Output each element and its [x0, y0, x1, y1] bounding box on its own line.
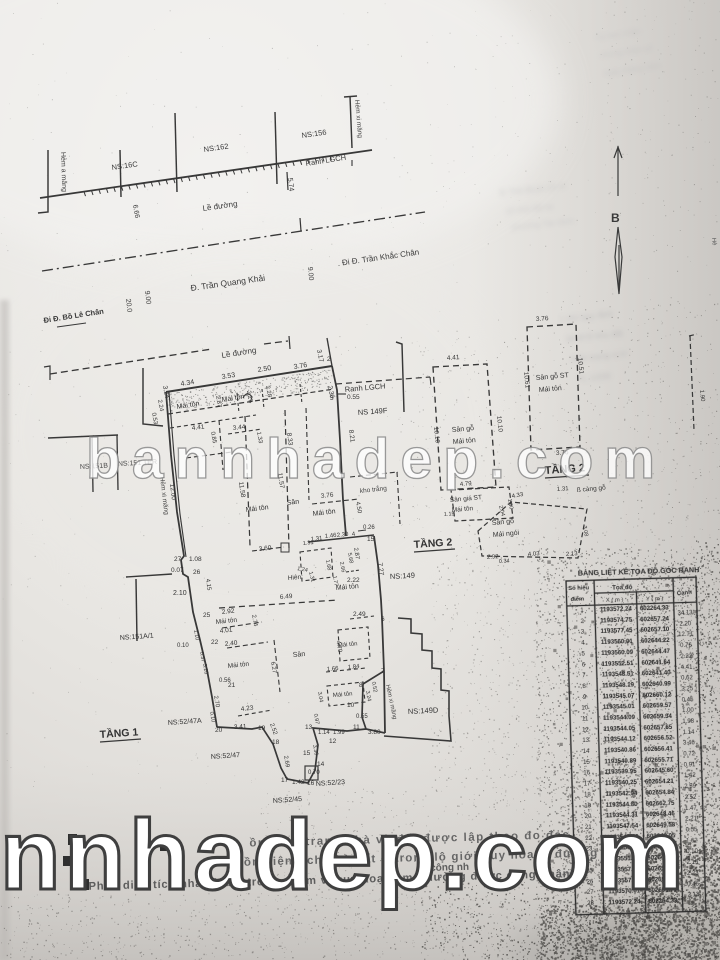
svg-text:0.76: 0.76 — [680, 643, 693, 649]
svg-text:bannhadep.com: bannhadep.com — [86, 427, 666, 491]
svg-text:1193540.25: 1193540.25 — [605, 779, 638, 787]
svg-text:8: 8 — [359, 682, 363, 689]
svg-text:2.92: 2.92 — [221, 608, 235, 616]
svg-text:12: 12 — [582, 727, 590, 733]
svg-text:1.90: 1.90 — [698, 390, 705, 403]
svg-text:Số hiệu: Số hiệu — [568, 584, 590, 592]
svg-text:1193548.51: 1193548.51 — [602, 671, 635, 679]
svg-text:1.62: 1.62 — [686, 838, 699, 844]
svg-text:602640.99: 602640.99 — [642, 680, 672, 688]
svg-text:2.40: 2.40 — [224, 640, 238, 648]
svg-text:4.03: 4.03 — [528, 551, 541, 558]
svg-text:12: 12 — [329, 738, 337, 745]
svg-text:10: 10 — [581, 705, 589, 711]
svg-text:22: 22 — [211, 639, 219, 646]
svg-text:nnhadep.com: nnhadep.com — [0, 799, 688, 910]
svg-text:2.23: 2.23 — [687, 871, 700, 877]
svg-text:2.15: 2.15 — [687, 860, 700, 866]
svg-text:3.80: 3.80 — [368, 729, 381, 736]
svg-text:Tọa độ: Tọa độ — [612, 584, 633, 592]
svg-text:12.71: 12.71 — [678, 632, 694, 638]
svg-text:Sân: Sân — [293, 651, 306, 659]
svg-text:4.01: 4.01 — [219, 627, 233, 635]
svg-text:1.08: 1.08 — [189, 556, 202, 563]
svg-text:34.13: 34.13 — [677, 610, 693, 616]
svg-text:602641.40: 602641.40 — [642, 670, 672, 678]
svg-text:1.14: 1.14 — [683, 730, 696, 736]
svg-text:1.66: 1.66 — [327, 666, 340, 673]
svg-text:Hẻ: Hẻ — [710, 238, 717, 247]
svg-text:0.07: 0.07 — [171, 567, 184, 574]
svg-text:0.70: 0.70 — [308, 770, 320, 776]
svg-text:602264.33: 602264.33 — [640, 604, 670, 612]
svg-text:0.91: 0.91 — [684, 762, 697, 768]
svg-text:2.13: 2.13 — [687, 892, 700, 898]
svg-text:2: 2 — [327, 356, 331, 363]
svg-text:602644.22: 602644.22 — [641, 637, 671, 645]
svg-text:602660.12: 602660.12 — [642, 691, 672, 699]
svg-text:0.46: 0.46 — [687, 881, 700, 887]
svg-text:602657.10: 602657.10 — [640, 626, 670, 634]
svg-text:1193539.95: 1193539.95 — [605, 768, 638, 776]
svg-text:1.46: 1.46 — [325, 533, 338, 540]
svg-text:1.31: 1.31 — [303, 540, 314, 547]
svg-text:B: B — [611, 211, 620, 225]
svg-text:2.10: 2.10 — [173, 590, 187, 597]
svg-text:602655.71: 602655.71 — [644, 756, 674, 764]
svg-text:11: 11 — [353, 724, 360, 731]
svg-text:điểm: điểm — [570, 595, 584, 602]
svg-text:1193542.94: 1193542.94 — [605, 790, 638, 798]
svg-text:1193545.07: 1193545.07 — [602, 692, 635, 700]
svg-text:602657.65: 602657.65 — [643, 724, 673, 732]
svg-text:602654.21: 602654.21 — [645, 778, 675, 786]
svg-text:1.84: 1.84 — [348, 664, 361, 671]
svg-text:1193577.45: 1193577.45 — [600, 627, 633, 635]
svg-text:2.22: 2.22 — [680, 654, 693, 660]
svg-text:17: 17 — [584, 781, 592, 787]
svg-text:1193540.89: 1193540.89 — [604, 757, 637, 765]
svg-text:1193552.51: 1193552.51 — [601, 660, 634, 668]
svg-text:1.98: 1.98 — [682, 719, 695, 725]
svg-text:Hiên:: Hiên: — [288, 574, 304, 582]
svg-text:1193544.09: 1193544.09 — [603, 714, 636, 722]
svg-text:1193540.86: 1193540.86 — [604, 746, 637, 754]
svg-text:15: 15 — [583, 760, 591, 766]
svg-text:18: 18 — [584, 792, 592, 798]
svg-text:18: 18 — [272, 739, 280, 746]
svg-text:602654.84: 602654.84 — [645, 789, 675, 797]
svg-text:1193560.09: 1193560.09 — [601, 649, 634, 657]
svg-text:1193544.05: 1193544.05 — [603, 725, 636, 733]
svg-text:TẦNG 2: TẦNG 2 — [413, 535, 452, 551]
svg-text:1.42: 1.42 — [292, 779, 305, 786]
svg-text:20: 20 — [215, 727, 223, 734]
svg-text:6.49: 6.49 — [280, 593, 294, 601]
svg-text:0.10: 0.10 — [686, 849, 699, 855]
svg-text:4.41: 4.41 — [447, 354, 460, 362]
svg-text:7: 7 — [381, 668, 385, 675]
svg-text:3.76: 3.76 — [536, 315, 549, 323]
svg-text:Y ( m ): Y ( m ) — [646, 596, 664, 603]
svg-text:0.55: 0.55 — [347, 394, 360, 401]
svg-text:0.34: 0.34 — [499, 558, 510, 565]
svg-text:17: 17 — [281, 777, 289, 784]
svg-text:4.23: 4.23 — [240, 705, 254, 713]
svg-text:602641.64: 602641.64 — [641, 659, 671, 667]
svg-text:X ( m ): X ( m ) — [606, 597, 624, 604]
svg-text:602656.41: 602656.41 — [644, 745, 674, 753]
svg-text:3.41: 3.41 — [234, 723, 247, 731]
svg-text:3: 3 — [330, 395, 334, 402]
svg-text:19: 19 — [258, 725, 266, 732]
svg-text:602659.34: 602659.34 — [643, 713, 673, 721]
svg-text:1.00: 1.00 — [682, 708, 695, 714]
svg-text:4.41: 4.41 — [681, 665, 694, 671]
svg-text:1193560.01: 1193560.01 — [601, 638, 634, 646]
svg-text:13: 13 — [582, 738, 590, 744]
svg-text:2.13: 2.13 — [566, 551, 579, 558]
svg-text:9.00: 9.00 — [306, 267, 314, 281]
svg-text:1.15: 1.15 — [444, 511, 455, 518]
svg-text:1193572.24: 1193572.24 — [600, 606, 633, 614]
svg-text:1193548.19: 1193548.19 — [602, 682, 635, 690]
svg-text:15: 15 — [303, 750, 311, 757]
svg-text:1.14: 1.14 — [318, 730, 330, 736]
svg-text:0.55: 0.55 — [356, 714, 368, 720]
svg-text:2.20: 2.20 — [679, 621, 692, 627]
svg-text:27: 27 — [174, 556, 182, 563]
svg-text:0.10: 0.10 — [177, 643, 189, 649]
svg-text:3.25: 3.25 — [681, 686, 694, 692]
svg-text:602644.47: 602644.47 — [641, 648, 671, 656]
svg-text:6: 6 — [381, 616, 385, 623]
svg-text:1193574.75: 1193574.75 — [600, 616, 633, 624]
svg-text:2.30: 2.30 — [337, 532, 350, 539]
svg-text:3.60: 3.60 — [258, 545, 272, 553]
svg-text:3.46: 3.46 — [683, 740, 696, 746]
svg-text:16: 16 — [583, 771, 591, 777]
svg-text:NS:149: NS:149 — [390, 571, 415, 581]
svg-text:11: 11 — [582, 716, 589, 722]
svg-text:2.59: 2.59 — [684, 784, 697, 790]
svg-text:0.45: 0.45 — [682, 697, 695, 703]
svg-text:1.42: 1.42 — [684, 773, 697, 779]
svg-text:0.72: 0.72 — [683, 751, 696, 757]
svg-text:14: 14 — [583, 749, 591, 755]
svg-text:0.62: 0.62 — [681, 675, 694, 681]
svg-text:TẦNG 1: TẦNG 1 — [99, 725, 138, 741]
svg-text:602656.52: 602656.52 — [644, 735, 674, 743]
svg-text:3.76: 3.76 — [320, 492, 334, 500]
svg-text:16: 16 — [307, 780, 315, 787]
svg-text:25: 25 — [203, 612, 211, 619]
svg-text:1193544.12: 1193544.12 — [604, 736, 637, 744]
svg-text:14: 14 — [317, 761, 325, 768]
svg-text:2.92: 2.92 — [487, 554, 500, 561]
svg-text:Hẻm a măng: Hẻm a măng — [59, 152, 67, 192]
svg-text:1.99: 1.99 — [333, 730, 345, 736]
svg-text:26: 26 — [193, 569, 201, 576]
svg-text:602657.24: 602657.24 — [640, 615, 670, 623]
svg-text:602659.57: 602659.57 — [643, 702, 673, 710]
svg-text:602645.60: 602645.60 — [645, 767, 675, 775]
svg-text:13: 13 — [305, 724, 313, 731]
svg-text:21: 21 — [228, 682, 236, 689]
svg-text:1193545.01: 1193545.01 — [603, 703, 636, 711]
svg-text:NS:149D: NS:149D — [408, 705, 439, 716]
